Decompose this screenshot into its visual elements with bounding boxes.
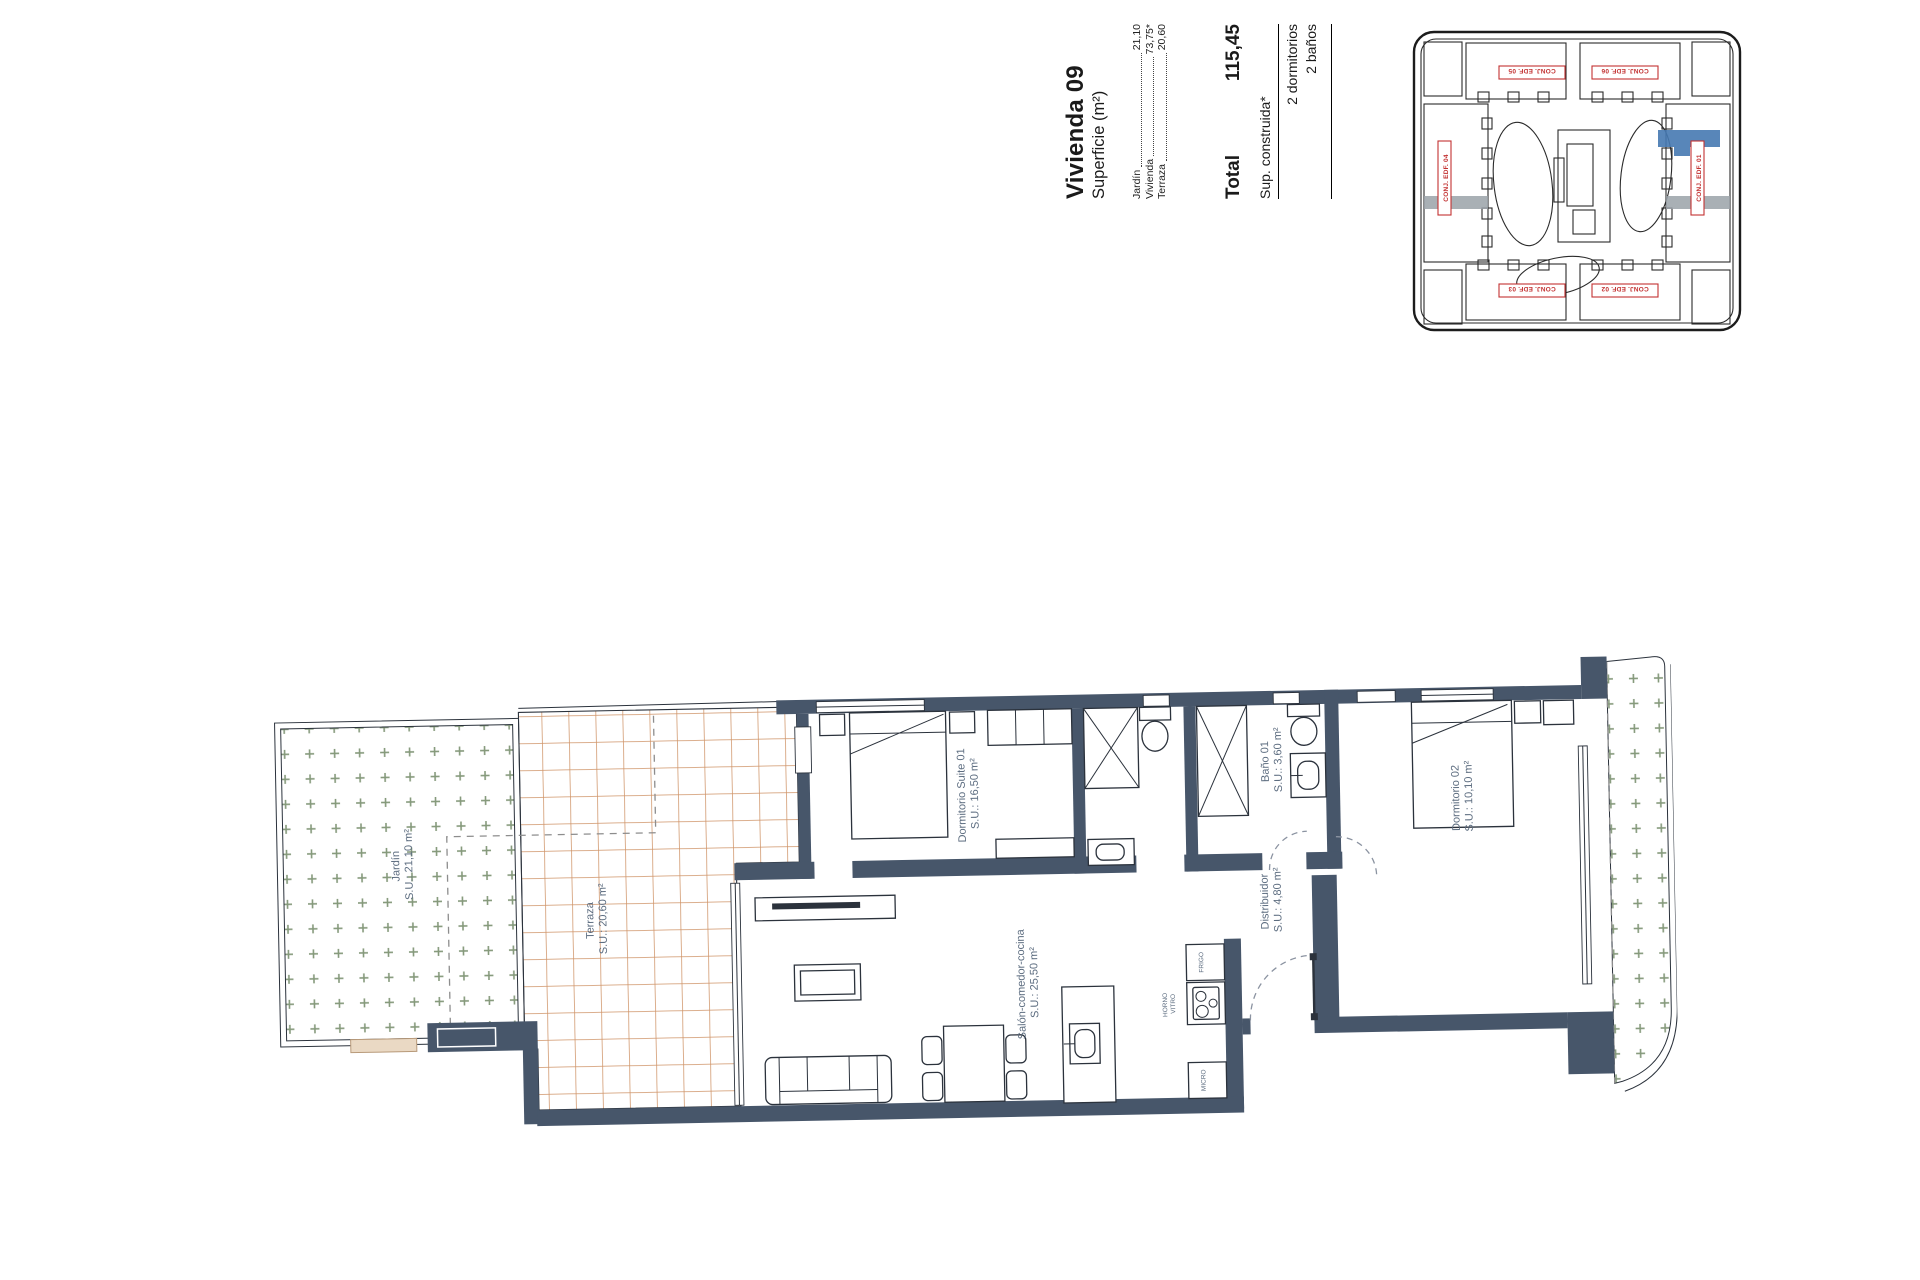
jardin-area bbox=[275, 718, 525, 1054]
dot-leader bbox=[1141, 53, 1142, 167]
dorm2-label: Dormitorio 02 S.U.: 10,10 m² bbox=[1449, 760, 1475, 832]
ensuite-fixtures bbox=[1083, 707, 1173, 866]
dot-leader bbox=[1153, 57, 1154, 156]
surface-row-terraza: Terraza 20,60 bbox=[1156, 24, 1169, 199]
svg-text:CONJ. EDF. 01: CONJ. EDF. 01 bbox=[1696, 154, 1703, 202]
right-garden-area bbox=[1607, 656, 1679, 1091]
oven-label: HORNO VITRO bbox=[1162, 991, 1177, 1017]
microwave bbox=[1188, 1062, 1227, 1099]
built-surface-note: Sup. construida* bbox=[1257, 24, 1279, 199]
surface-row-value: 73,75* bbox=[1144, 24, 1157, 54]
svg-text:CONJ. EDF. 05: CONJ. EDF. 05 bbox=[1508, 67, 1556, 74]
surface-row-label: Jardín bbox=[1131, 170, 1144, 199]
svg-text:CONJ. EDF. 02: CONJ. EDF. 02 bbox=[1601, 285, 1649, 292]
fridge bbox=[1186, 944, 1225, 981]
toilet-bowl bbox=[1142, 721, 1169, 751]
distribuidor-label: Distribuidor S.U.: 4,80 m² bbox=[1258, 867, 1284, 933]
toilet-tank bbox=[1139, 707, 1170, 721]
surface-row-value: 21,10 bbox=[1131, 24, 1144, 50]
surface-table: Jardín 21,10 Vivienda 73,75* Terraza 20,… bbox=[1131, 24, 1169, 199]
salon-label: Salón-comedor-cocina S.U.: 25,50 m² bbox=[1015, 926, 1042, 1040]
bano1-label: Baño 01 S.U.: 3,60 m² bbox=[1259, 727, 1285, 793]
legend-block: Vivienda 09 Superficie (m²) Jardín 21,10… bbox=[1063, 24, 1373, 199]
chair bbox=[1006, 1071, 1027, 1099]
site-label-top-right: CONJ. EDF. 06 bbox=[1592, 66, 1658, 79]
surface-row-label: Vivienda bbox=[1144, 159, 1157, 199]
entrance-door-leaf bbox=[1313, 957, 1314, 1019]
cabinet bbox=[996, 838, 1074, 858]
kitchen-appliances: FRIGO HORNO VITRO MICRO bbox=[1161, 944, 1227, 1099]
nightstand bbox=[949, 712, 974, 733]
chair bbox=[922, 1036, 943, 1064]
site-gray-bands bbox=[1424, 196, 1730, 209]
surface-row-vivienda: Vivienda 73,75* bbox=[1144, 24, 1157, 199]
sofa bbox=[765, 1055, 892, 1104]
unit-highlight bbox=[1658, 130, 1720, 156]
toilet-tank bbox=[1287, 704, 1319, 717]
suite-label: Dormitorio Suite 01 S.U.: 16,50 m² bbox=[955, 745, 982, 843]
svg-text:CONJ. EDF. 03: CONJ. EDF. 03 bbox=[1508, 285, 1556, 292]
site-label-right: CONJ. EDF. 01 bbox=[1691, 141, 1704, 215]
site-label-bottom-right: CONJ. EDF. 02 bbox=[1592, 284, 1658, 297]
closet bbox=[1543, 700, 1573, 725]
svg-text:CONJ. EDF. 04: CONJ. EDF. 04 bbox=[1443, 154, 1450, 202]
dwelling-title: Vivienda 09 bbox=[1063, 24, 1089, 199]
total-row: Total 115,45 bbox=[1223, 24, 1245, 199]
fridge-label: FRIGO bbox=[1198, 952, 1205, 973]
site-label-top-left: CONJ. EDF. 05 bbox=[1499, 66, 1565, 79]
nightstand bbox=[1514, 701, 1540, 723]
nightstand bbox=[819, 714, 844, 735]
site-courtyard bbox=[1487, 117, 1678, 302]
surface-subtitle: Superficie (m²) bbox=[1089, 24, 1109, 199]
surface-row-value: 20,60 bbox=[1156, 24, 1169, 50]
site-key-plan-svg: CONJ. EDF. 05 CONJ. EDF. 06 CONJ. EDF. 0… bbox=[1408, 26, 1748, 340]
total-value: 115,45 bbox=[1223, 24, 1245, 81]
feature-list: 2 dormitorios 2 baños bbox=[1283, 24, 1332, 199]
site-label-left: CONJ. EDF. 04 bbox=[1438, 141, 1451, 215]
site-key-plan: CONJ. EDF. 05 CONJ. EDF. 06 CONJ. EDF. 0… bbox=[1408, 26, 1748, 340]
wardrobe bbox=[987, 709, 1072, 746]
micro-label: MICRO bbox=[1200, 1069, 1207, 1091]
suite-furniture bbox=[819, 709, 1074, 862]
toilet-bowl bbox=[1291, 717, 1318, 745]
floor-plan-svg: FRIGO HORNO VITRO MICRO Jardín S.U.: 21,… bbox=[270, 640, 1679, 1152]
dorm2-furniture bbox=[1411, 699, 1575, 828]
total-label: Total bbox=[1223, 155, 1245, 199]
dot-leader bbox=[1166, 53, 1167, 161]
chair bbox=[922, 1072, 943, 1100]
site-building-blocks bbox=[1424, 42, 1730, 324]
surface-row-jardin: Jardín 21,10 bbox=[1131, 24, 1144, 199]
dining-table bbox=[943, 1025, 1004, 1102]
feature-bathrooms: 2 baños bbox=[1302, 24, 1321, 199]
salon-furniture bbox=[755, 891, 1116, 1109]
floor-plan: FRIGO HORNO VITRO MICRO Jardín S.U.: 21,… bbox=[270, 640, 1679, 1152]
sink-basin bbox=[1096, 844, 1124, 861]
site-label-bottom-left: CONJ. EDF. 03 bbox=[1499, 284, 1565, 297]
surface-row-label: Terraza bbox=[1156, 164, 1169, 199]
utility-box bbox=[437, 1028, 495, 1047]
feature-bedrooms: 2 dormitorios bbox=[1283, 24, 1302, 199]
svg-text:CONJ. EDF. 06: CONJ. EDF. 06 bbox=[1601, 67, 1649, 74]
